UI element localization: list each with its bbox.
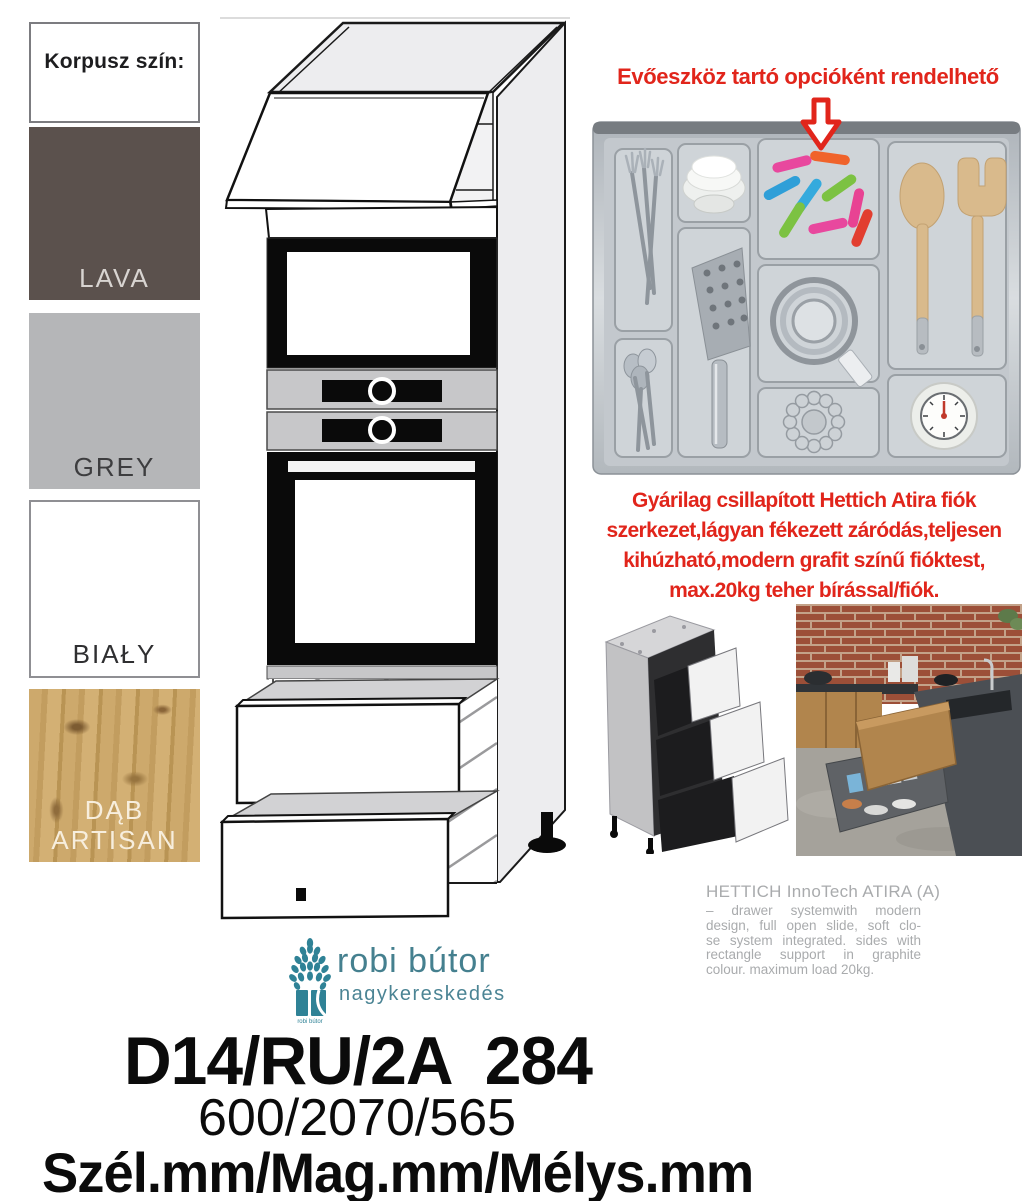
kitchen-photo [796,604,1022,856]
cutlery-tray-photo [592,118,1022,480]
cabinet-foot [541,812,553,840]
logo-subtitle: nagykereskedés [339,983,506,1006]
tree-leaves [288,938,333,991]
robi-butor-logo-icon: robi bútor [286,936,334,1024]
body-colour-title: Korpusz szín: [31,50,198,74]
drawer-system-render [592,604,796,854]
swatch-label: BIAŁY [31,639,198,676]
body-colour-header: Korpusz szín: [29,22,200,123]
swatch-label: GREY [29,452,200,489]
product-dimensions: 600/2070/565 [198,1088,516,1148]
tree-trunk [296,990,326,1016]
dimension-labels: Szél.mm/Mag.mm/Mélys.mm [42,1140,753,1201]
down-arrow-icon [799,97,843,153]
hettich-title: HETTICH InnoTech ATIRA (A) [706,882,921,902]
swatch-dab-artisan[interactable]: DĄB ARTISAN [29,689,200,862]
hettich-description: HETTICH InnoTech ATIRA (A) – drawer syst… [706,882,921,978]
cabinet-line-drawing [220,12,580,922]
swatch-grey[interactable]: GREY [29,313,200,489]
swatch-label: LAVA [29,263,200,300]
drawer-info-text: Gyárilag csillapított Hettich Atira fiók… [574,486,1026,606]
product-sheet: Korpusz szín: LAVA GREY BIAŁY DĄB ARTISA… [0,0,1026,1201]
swatch-lava[interactable]: LAVA [29,127,200,300]
logo-name: robi bútor [337,942,491,981]
cutlery-option-title: Evőeszköz tartó opcióként rendelhető [588,64,1026,90]
kitchen-timer [911,383,977,449]
swatch-bialy[interactable]: BIAŁY [29,500,200,678]
swatch-label: DĄB ARTISAN [29,795,200,862]
